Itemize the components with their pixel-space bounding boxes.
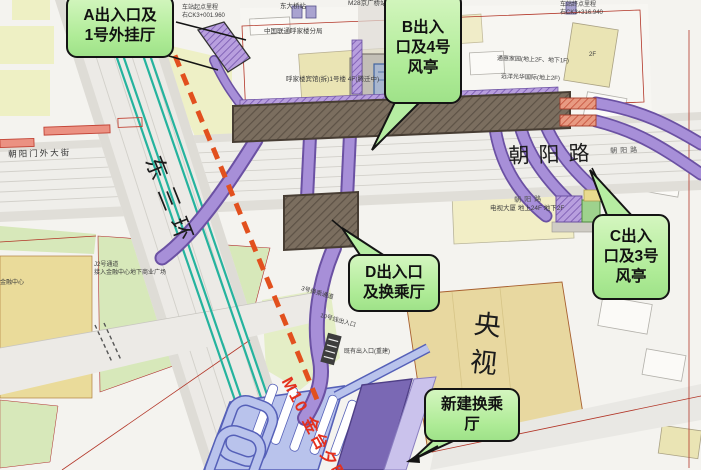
map-annotation: J2号通道 接入金融中心地下商业广场: [94, 262, 166, 277]
label-chaoyang-road: 朝阳路: [508, 137, 599, 170]
callout-c-entrance: C出入 口及3号 风亭: [592, 214, 670, 300]
map-annotation: 电视大厦 地上24F 地下2F: [490, 205, 564, 213]
callout-d-entrance: D出入口 及换乘厅: [348, 254, 440, 312]
callout-b-entrance: B出入 口及4号 风亭: [384, 0, 462, 104]
map-annotation: 呼家楼宾馆(拆)1号楼 4F(腾迁中): [286, 76, 379, 84]
map-annotation: 既有出入口(重建): [344, 349, 390, 357]
map-annotation: 中国联通呼家楼分局: [264, 28, 323, 36]
map-annotation: 车站终点里程 右CK3+316.940: [560, 2, 603, 17]
label-chaoyangmenwai-avenue: 朝阳门外大街: [8, 146, 71, 160]
label-chaoyang-road-small: 朝阳路: [514, 194, 544, 205]
label-chaoyang-road-right: 朝阳路: [610, 145, 640, 156]
map-annotation: 2F: [589, 52, 596, 60]
callout-a-entrance: A出入口及 1号外挂厅: [66, 0, 174, 58]
callout-new-transfer-hall: 新建换乘 厅: [424, 388, 520, 442]
map-annotation: 东大桥站: [280, 3, 306, 11]
map-annotation: 车站起点里程 右CK3+001.960: [182, 5, 225, 20]
map-annotation: M28京广桥站: [348, 0, 387, 8]
map-annotation: 金融中心: [0, 280, 24, 288]
station-plan-map: 朝阳路 东三环 央 视 M10 金台夕照 朝阳门外大街 朝阳路 朝阳路 东大桥站…: [0, 0, 701, 470]
